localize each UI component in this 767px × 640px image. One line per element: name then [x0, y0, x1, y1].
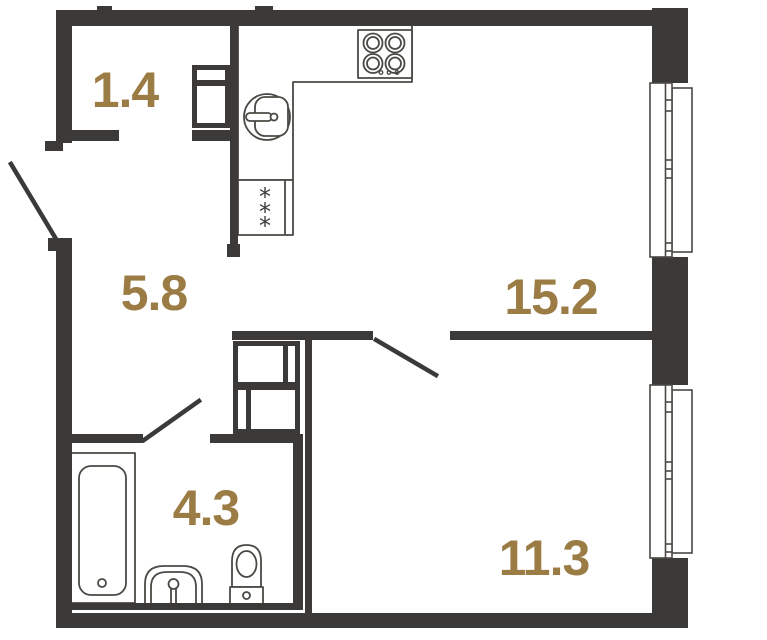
- wardrobe-cell: [197, 86, 225, 123]
- wall-right-middle: [652, 257, 688, 385]
- wall-bathroom-top-left: [70, 434, 143, 443]
- sink-drain: [271, 114, 278, 121]
- wall-top-tab: [97, 6, 112, 11]
- kitchen-sink-icon: [244, 94, 290, 140]
- wall-hall-stub-right: [192, 130, 230, 141]
- wall-left-lower: [56, 238, 72, 628]
- wall-kitchen-partition: [230, 26, 238, 246]
- wall-bathroom-right: [293, 434, 303, 610]
- window-icon: [650, 83, 692, 257]
- room-label-room: 11.3: [499, 530, 590, 586]
- wall-top-tab: [255, 6, 273, 11]
- window-sill: [672, 88, 692, 252]
- wall-bathroom-top-right: [210, 434, 303, 443]
- window-icon: [650, 385, 692, 558]
- washbasin-icon: [145, 566, 202, 605]
- fridge-star: *: [259, 212, 271, 240]
- room-label-entry-hall: 1.4: [92, 62, 160, 118]
- wall-left-upper: [56, 10, 72, 143]
- window-sill: [672, 390, 692, 553]
- washbasin-faucet: [169, 579, 179, 589]
- floor-plan: * * *: [0, 0, 767, 640]
- window-frame: [650, 83, 672, 257]
- bathtub-inner: [79, 466, 126, 595]
- wall-top: [56, 10, 653, 26]
- wall-bottom: [56, 613, 688, 628]
- bathtub-icon: [70, 453, 135, 603]
- wall-kitchen-partition-foot: [227, 244, 240, 257]
- room-label-corridor: 5.8: [121, 265, 188, 321]
- wardrobe-cell: [197, 70, 225, 80]
- vent-shaft-cell: [238, 346, 283, 382]
- wall-right-top: [652, 8, 688, 83]
- stove-icon: [358, 30, 412, 78]
- room-label-kitchen-living: 15.2: [504, 269, 597, 325]
- wall-bathroom-bottom: [70, 603, 303, 610]
- wall-room-divider-left: [232, 331, 373, 340]
- wall-hall-stub-left: [72, 130, 119, 141]
- fridge-marks: * * *: [259, 183, 271, 240]
- entrance-jamb-top: [45, 141, 63, 151]
- wall-room-divider-right: [450, 331, 652, 340]
- vent-shaft-cell: [251, 390, 295, 429]
- toilet-tank: [230, 587, 263, 605]
- vent-shaft-cell: [288, 346, 295, 382]
- room-label-bathroom: 4.3: [173, 480, 240, 536]
- wall-right-bottom: [652, 558, 688, 628]
- toilet-icon: [230, 545, 263, 605]
- vent-shaft-cell: [238, 390, 246, 429]
- wall-inner-partition: [305, 340, 312, 613]
- sink-faucet: [246, 113, 272, 121]
